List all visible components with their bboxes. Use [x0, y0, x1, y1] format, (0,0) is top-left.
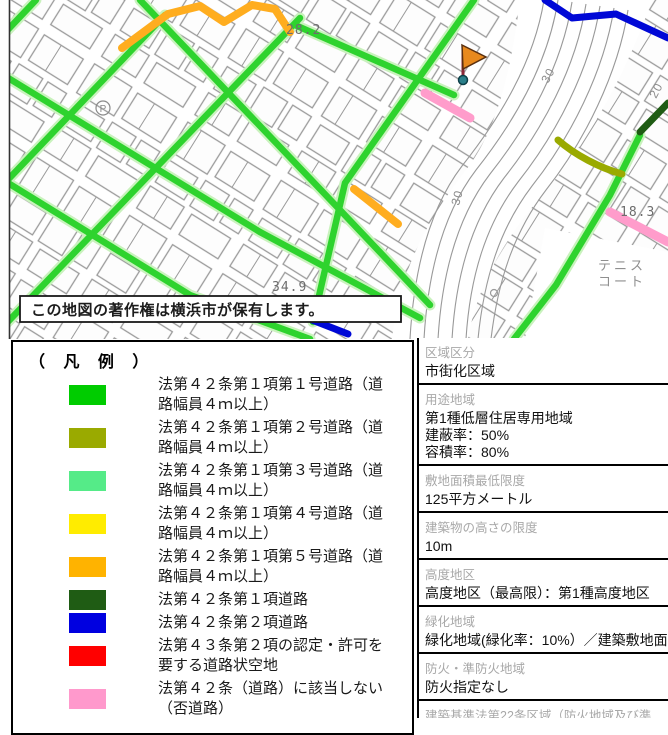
map-area[interactable]: P 28.2 34.9 18.3 30 30 20 テニス コート	[0, 0, 668, 339]
legend-item-label: 法第４２条第１項道路	[158, 590, 396, 610]
legend-swatch-green	[69, 385, 106, 405]
info-section-min-site-area: 敷地面積最低限度 125平方メートル	[419, 466, 668, 513]
legend-swatch-blue	[69, 613, 106, 633]
legend-item-label: 法第４２条第１項第１号道路（道路幅員４ｍ以上）	[158, 375, 396, 415]
info-value: 防火指定なし	[419, 678, 668, 695]
info-value: 緑化地域(緑化率：10%）／建築敷地面積	[419, 631, 668, 648]
legend-item-42-1-1: 法第４２条第１項第１号道路（道路幅員４ｍ以上）	[69, 375, 412, 415]
legend-swatch-springgreen	[69, 471, 106, 491]
legend-item-label: 法第４３条第２項の認定・許可を要する道路状空地	[158, 636, 396, 676]
legend-item-label: 法第４２条第２項道路	[158, 613, 396, 633]
legend-item-42-1: 法第４２条第１項道路	[69, 590, 412, 610]
legend-item-label: 法第４２条第１項第３号道路（道路幅員４ｍ以上）	[158, 461, 396, 501]
legend-item-42-2: 法第４２条第２項道路	[69, 613, 412, 633]
info-section-use-district: 用途地域 第1種低層住居専用地域 建蔽率：50% 容積率：80%	[419, 385, 668, 466]
info-header: 建築物の高さの限度	[419, 513, 668, 537]
legend-swatch-red	[69, 646, 106, 666]
info-value: 建蔽率：50%	[419, 426, 668, 443]
info-section-area-classification: 区域区分 市街化区域	[419, 338, 668, 385]
info-header: 建築基準法第22条区域（防火地域及び準	[419, 701, 668, 718]
elevation-label-28-2: 28.2	[286, 23, 321, 38]
info-value: 第1種低層住居専用地域	[419, 409, 668, 426]
legend-item-42-1-4: 法第４２条第１項第４号道路（道路幅員４ｍ以上）	[69, 504, 412, 544]
svg-text:テニス: テニス	[598, 258, 646, 273]
info-value: 高度地区（最高限）：第1種高度地区	[419, 584, 668, 601]
info-section-article22: 建築基準法第22条区域（防火地域及び準 建築基準法第22条による区域	[419, 701, 668, 718]
info-value: 市街化区域	[419, 362, 668, 379]
legend-item-42-1-2: 法第４２条第１項第２号道路（道路幅員４ｍ以上）	[69, 418, 412, 458]
svg-text:この地図の著作権は横浜市が保有します。: この地図の著作権は横浜市が保有します。	[31, 301, 324, 319]
legend-swatch-pink	[69, 689, 106, 709]
info-value: 10m	[419, 537, 668, 554]
svg-text:コート: コート	[598, 274, 646, 289]
info-header: 高度地区	[419, 560, 668, 584]
legend-item-label: 法第４２条第１項第２号道路（道路幅員４ｍ以上）	[158, 418, 396, 458]
info-header: 防火・準防火地域	[419, 654, 668, 678]
legend-swatch-darkgreen	[69, 590, 106, 610]
elevation-label-34-9: 34.9	[272, 280, 307, 295]
legend-item-43-2: 法第４３条第２項の認定・許可を要する道路状空地	[69, 636, 412, 676]
tennis-court-label: テニス コート	[598, 258, 646, 289]
info-section-fire-prevention: 防火・準防火地域 防火指定なし	[419, 654, 668, 701]
elevation-label-18-3: 18.3	[620, 205, 655, 220]
legend-item-non-road: 法第４２条（道路）に該当しない（否道路）	[69, 679, 412, 719]
copyright-notice: この地図の著作権は横浜市が保有します。	[20, 296, 401, 322]
legend-item-label: 法第４２条第１項第４号道路（道路幅員４ｍ以上）	[158, 504, 396, 544]
legend-item-label: 法第４２条（道路）に該当しない（否道路）	[158, 679, 396, 719]
info-value: 容積率：80%	[419, 443, 668, 460]
legend-panel: （ 凡 例 ） 法第４２条第１項第１号道路（道路幅員４ｍ以上） 法第４２条第１項…	[11, 340, 414, 735]
info-header: 敷地面積最低限度	[419, 466, 668, 490]
info-value: 125平方メートル	[419, 490, 668, 507]
map-viewer-page: P 28.2 34.9 18.3 30 30 20 テニス コート	[0, 0, 668, 718]
legend-item-42-1-3: 法第４２条第１項第３号道路（道路幅員４ｍ以上）	[69, 461, 412, 501]
info-header: 緑化地域	[419, 607, 668, 631]
zoning-info-panel: 区域区分 市街化区域 用途地域 第1種低層住居専用地域 建蔽率：50% 容積率：…	[417, 338, 668, 718]
legend-item-42-1-5: 法第４２条第１項第５号道路（道路幅員４ｍ以上）	[69, 547, 412, 587]
legend-swatch-yellow	[69, 514, 106, 534]
map-frame	[0, 0, 10, 339]
info-header: 区域区分	[419, 338, 668, 362]
info-header: 用途地域	[419, 385, 668, 409]
info-section-greening-district: 緑化地域 緑化地域(緑化率：10%）／建築敷地面積	[419, 607, 668, 654]
info-section-height-district: 高度地区 高度地区（最高限）：第1種高度地区	[419, 560, 668, 607]
svg-text:P: P	[100, 104, 107, 115]
legend-title: （ 凡 例 ）	[29, 348, 412, 372]
legend-swatch-orange	[69, 557, 106, 577]
map-canvas[interactable]: P 28.2 34.9 18.3 30 30 20 テニス コート	[0, 0, 668, 339]
info-section-height-limit: 建築物の高さの限度 10m	[419, 513, 668, 560]
legend-item-label: 法第４２条第１項第５号道路（道路幅員４ｍ以上）	[158, 547, 396, 587]
legend-swatch-olive	[69, 428, 106, 448]
